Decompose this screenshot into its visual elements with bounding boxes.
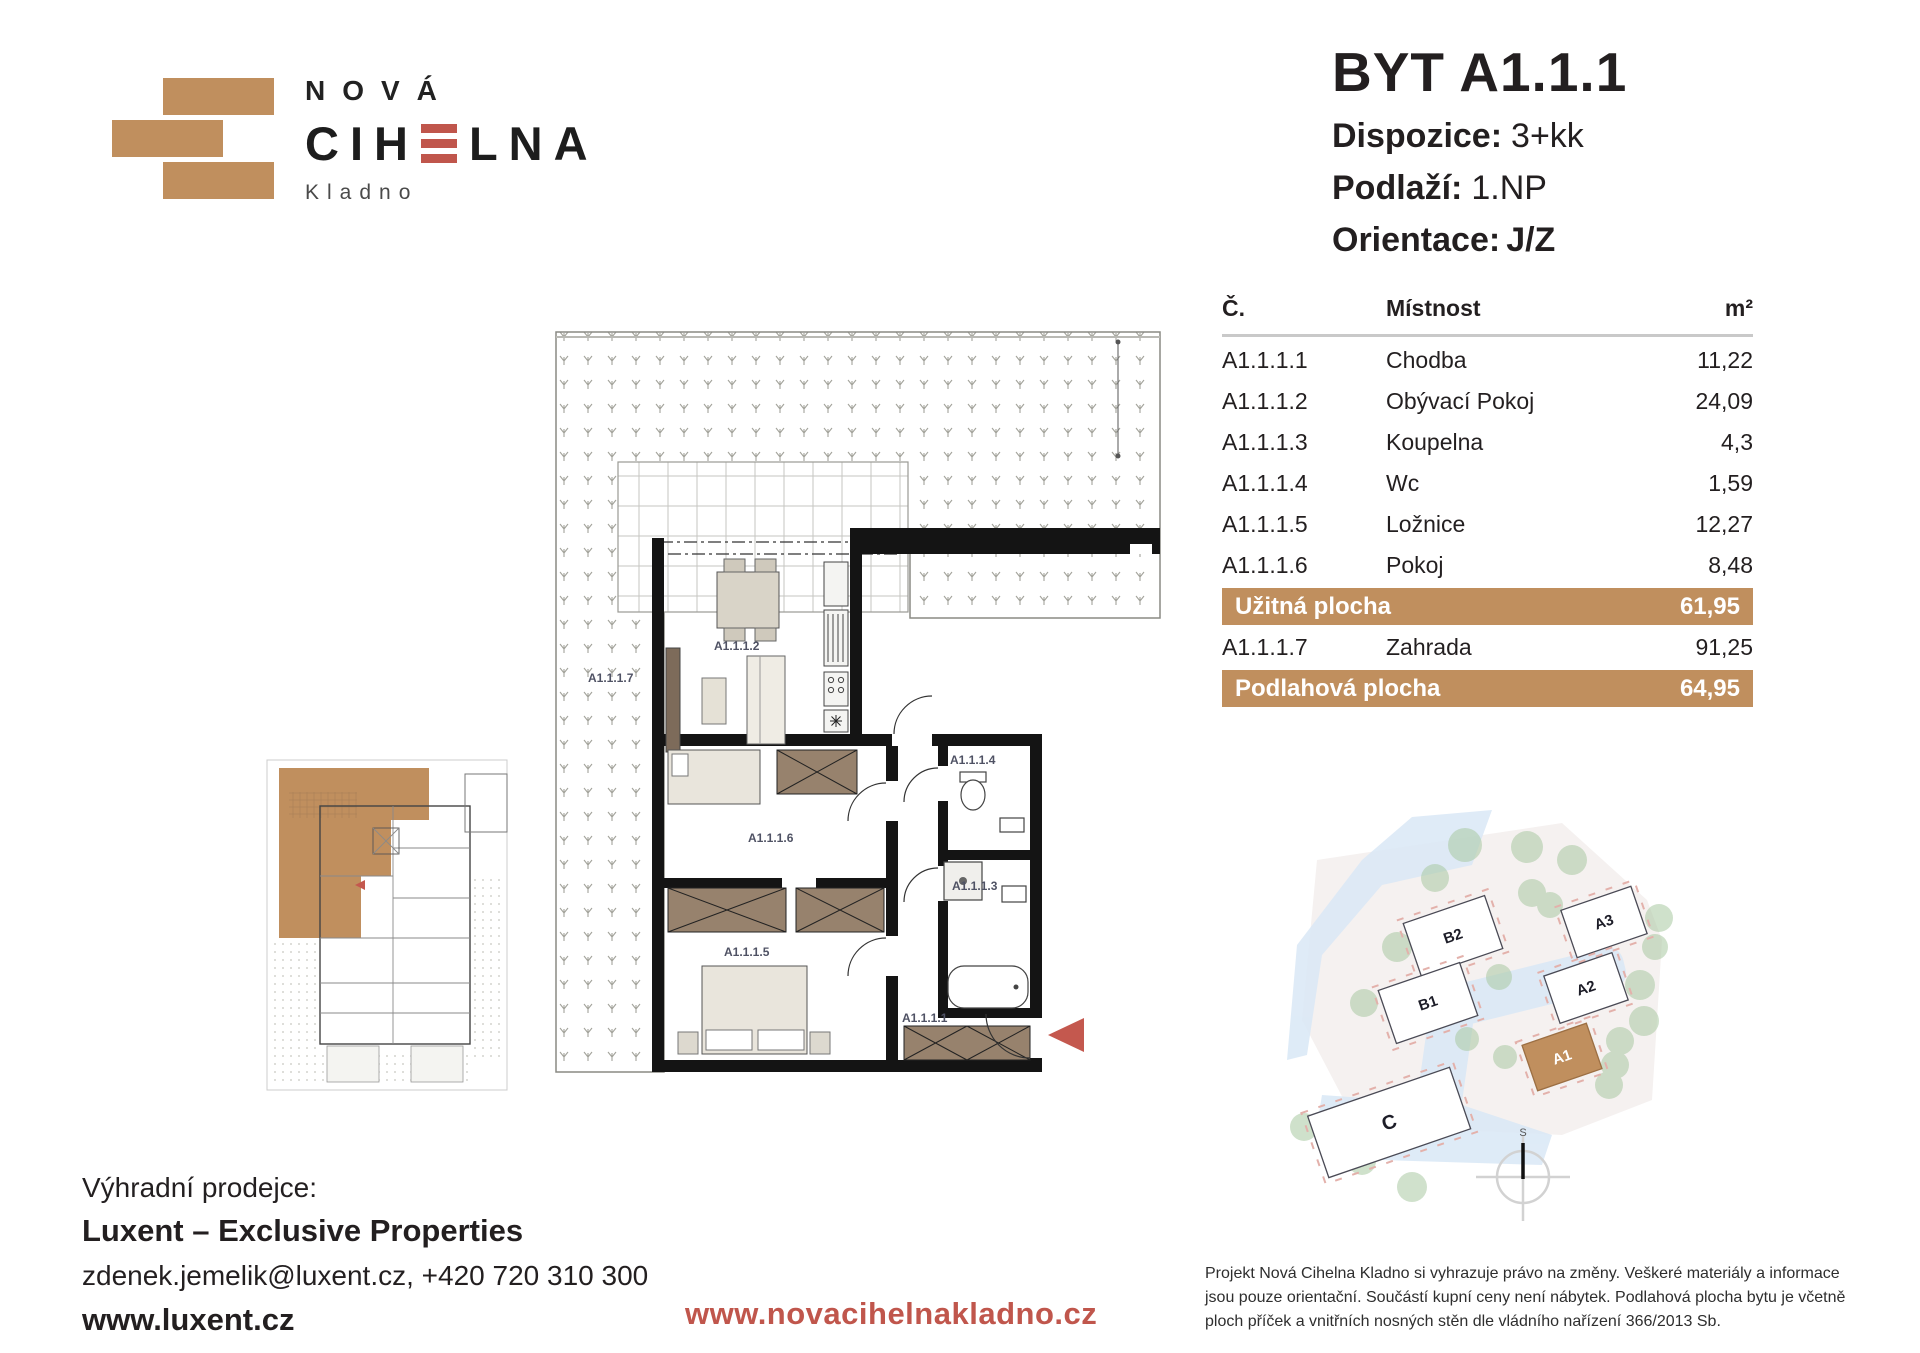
summary-usable-area: Užitná plocha 61,95 [1222,588,1753,625]
building-overview-plan [265,758,510,1093]
main-floor-plan: A1.1.1.7 A1.1.1.2 A1.1.1.6 A1.1.1.4 A1.1… [552,326,1164,1078]
spec-value: 1.NP [1471,169,1547,207]
spec-label: Orientace: [1332,221,1500,259]
cell-area: 11,22 [1643,347,1753,374]
cell-room: Obývací Pokoj [1386,388,1643,415]
table-row: A1.1.1.6Pokoj8,48 [1222,545,1753,586]
spec-label: Podlaží: [1332,169,1462,207]
logo: NOVÁ CIHLNA Kladno [112,75,672,215]
floorplan-sheet: { "logo": { "line1": "NOVÁ", "brand_pre"… [0,0,1920,1353]
entrance-arrow-icon [1048,1018,1084,1052]
label-bedroom: A1.1.1.5 [724,945,770,959]
spec-value: 3+kk [1511,117,1584,155]
site-map: B2 B1 A3 A2 A1 C S [1262,805,1682,1225]
summary-label: Užitná plocha [1235,593,1391,621]
cell-area: 1,59 [1643,470,1753,497]
label-room6: A1.1.1.6 [748,831,794,845]
logo-brick-middle [112,120,223,157]
seller-block: Výhradní prodejce: Luxent – Exclusive Pr… [82,1172,682,1338]
table-body: A1.1.1.1Chodba11,22A1.1.1.2Obývací Pokoj… [1222,340,1753,586]
wc-fixtures [960,772,1024,832]
table-row: A1.1.1.5Ložnice12,27 [1222,504,1753,545]
compass-north-label: S [1519,1127,1526,1139]
table-row: A1.1.1.1Chodba11,22 [1222,340,1753,381]
col-header-area: m² [1643,295,1753,322]
logo-text: NOVÁ CIHLNA Kladno [305,75,599,205]
cell-room: Ložnice [1386,511,1643,538]
summary-value: 64,95 [1680,675,1740,703]
cell-room: Chodba [1386,347,1643,374]
cell-code: A1.1.1.3 [1222,429,1386,456]
cell-code: A1.1.1.5 [1222,511,1386,538]
table-row: A1.1.1.3Koupelna4,3 [1222,422,1753,463]
summary-value: 61,95 [1680,593,1740,621]
seller-contact-link[interactable]: zdenek.jemelik@luxent.cz, +420 720 310 3… [82,1260,682,1292]
cell-room: Koupelna [1386,429,1643,456]
room-table: Č. Místnost m² A1.1.1.1Chodba11,22A1.1.1… [1222,295,1753,709]
cell-code: A1.1.1.7 [1222,634,1386,661]
kitchen-counter [824,562,848,732]
label-hall: A1.1.1.1 [902,1011,948,1025]
seller-label: Výhradní prodejce: [82,1172,682,1204]
table-row: A1.1.1.4Wc1,59 [1222,463,1753,504]
col-header-code: Č. [1222,295,1386,322]
cell-area: 12,27 [1643,511,1753,538]
cell-code: A1.1.1.2 [1222,388,1386,415]
logo-cihelna: CIHLNA [305,116,599,171]
spec-podlazi: Podlaží:1.NP [1332,169,1892,208]
cell-room: Pokoj [1386,552,1643,579]
spec-value: J/Z [1506,221,1555,259]
spec-label: Dispozice: [1332,117,1502,155]
label-terrace: A1.1.1.7 [588,671,634,685]
cell-code: A1.1.1.4 [1222,470,1386,497]
logo-brand-post: LNA [469,116,599,171]
page-title: BYT A1.1.1 [1332,40,1892,104]
seller-name: Luxent – Exclusive Properties [82,1213,682,1249]
cell-area: 8,48 [1643,552,1753,579]
logo-brick-bottom [163,162,274,199]
table-row-zahrada: A1.1.1.7 Zahrada 91,25 [1222,627,1753,668]
logo-nova: NOVÁ [305,75,599,107]
table-row: A1.1.1.2Obývací Pokoj24,09 [1222,381,1753,422]
logo-brick-top [163,78,274,115]
cell-area: 91,25 [1643,634,1753,661]
cell-room: Zahrada [1386,634,1643,661]
summary-label: Podlahová plocha [1235,675,1440,703]
cell-code: A1.1.1.1 [1222,347,1386,374]
seller-website-link[interactable]: www.luxent.cz [82,1302,682,1338]
bedroom-furniture [678,966,830,1054]
disclaimer-text: Projekt Nová Cihelna Kladno si vyhrazuje… [1205,1262,1860,1334]
label-bath: A1.1.1.3 [952,879,998,893]
spec-dispozice: Dispozice:3+kk [1332,117,1892,156]
logo-city: Kladno [305,181,599,205]
spec-orientace: Orientace:J/Z [1332,221,1892,260]
cell-code: A1.1.1.6 [1222,552,1386,579]
cell-area: 24,09 [1643,388,1753,415]
hallway-wardrobe [904,1026,1030,1060]
label-wc: A1.1.1.4 [950,753,996,767]
label-living: A1.1.1.2 [714,639,760,653]
project-website-link[interactable]: www.novacihelnakladno.cz [685,1296,1097,1332]
summary-floor-area: Podlahová plocha 64,95 [1222,670,1753,707]
cell-room: Wc [1386,470,1643,497]
col-header-room: Místnost [1386,295,1643,322]
logo-brand-pre: CIH [305,116,419,171]
logo-e-icon [421,124,457,163]
cell-area: 4,3 [1643,429,1753,456]
table-header-row: Č. Místnost m² [1222,295,1753,337]
apartment-header: BYT A1.1.1 Dispozice:3+kk Podlaží:1.NP O… [1332,40,1892,260]
